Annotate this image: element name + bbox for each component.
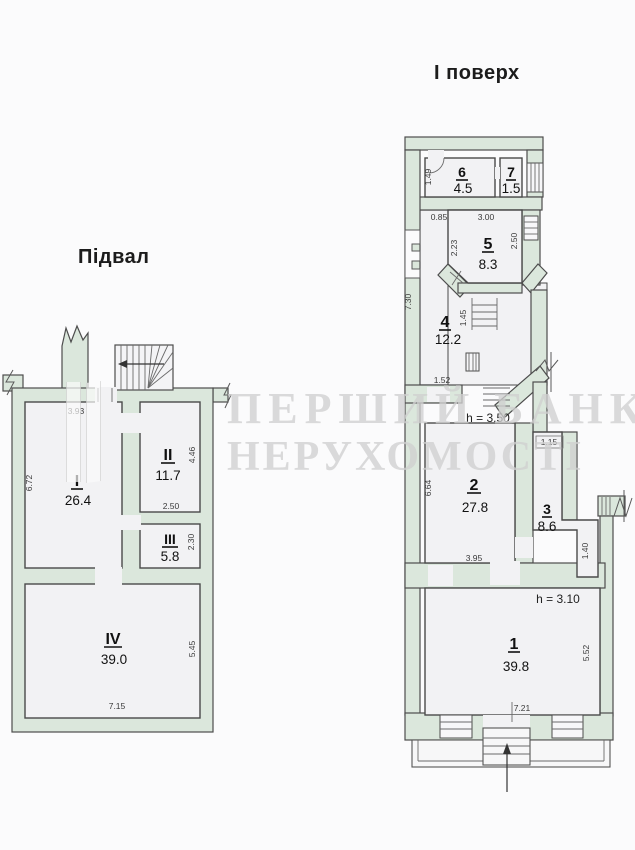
room-area: 39.0 bbox=[101, 652, 127, 667]
dimension-label: 4.46 bbox=[187, 446, 197, 463]
watermark-logo bbox=[66, 382, 116, 482]
room-number: 4 bbox=[441, 314, 450, 331]
watermark-line2: НЕРУХОМОСТІ bbox=[227, 433, 585, 481]
dimension-label: 5.52 bbox=[581, 644, 591, 661]
dimension-label: 1.45 bbox=[458, 309, 468, 326]
dimension-label: 5.45 bbox=[187, 640, 197, 657]
height-label: h = 3.10 bbox=[536, 592, 580, 606]
room-area: 4.5 bbox=[454, 181, 473, 196]
dimension-label: 3.95 bbox=[466, 553, 483, 563]
room-area: 8.6 bbox=[538, 519, 557, 534]
room-area: 12.2 bbox=[435, 332, 461, 347]
room-area: 39.8 bbox=[503, 659, 529, 674]
room-area: 8.3 bbox=[479, 257, 498, 272]
dimension-label: 7.30 bbox=[403, 293, 413, 310]
floorplan-scan-page: Підвал І поверх bbox=[0, 0, 635, 850]
dimension-label: 2.30 bbox=[186, 533, 196, 550]
room-area: 11.7 bbox=[155, 468, 180, 483]
dimension-label: 7.15 bbox=[109, 701, 126, 711]
room-area: 26.4 bbox=[65, 493, 92, 508]
dimension-label: 1.49 bbox=[423, 168, 433, 185]
dimension-label: 7.21 bbox=[514, 703, 531, 713]
room-area: 27.8 bbox=[462, 500, 488, 515]
room-area: 1.5 bbox=[502, 181, 521, 196]
dimension-label: 3.00 bbox=[478, 212, 495, 222]
dimension-label: 6.72 bbox=[24, 474, 34, 491]
basement-title: Підвал bbox=[78, 246, 150, 269]
room-number: 6 bbox=[458, 164, 466, 180]
room-number: 3 bbox=[543, 501, 551, 517]
watermark-logo-bar bbox=[86, 381, 101, 483]
dimension-label: 6.64 bbox=[423, 479, 433, 496]
dimension-label: 0.85 bbox=[431, 212, 448, 222]
room-number: II bbox=[164, 447, 173, 464]
watermark-logo-bar bbox=[66, 382, 81, 482]
room-number: 5 bbox=[484, 236, 493, 253]
room-number: 1 bbox=[510, 636, 519, 653]
room-number: 7 bbox=[507, 164, 515, 180]
room-number: IV bbox=[105, 631, 120, 648]
dimension-label: 2.50 bbox=[509, 232, 519, 249]
basement-plan-drawing: 3.93 6.72 I 26.4 II 11.7 4.46 2.50 III 5… bbox=[0, 320, 240, 740]
first-floor-title: І поверх bbox=[434, 62, 520, 85]
dimension-label: 2.50 bbox=[163, 501, 180, 511]
dimension-label: 1.40 bbox=[580, 542, 590, 559]
watermark-line1: ПЕРШИЙ БАНК bbox=[227, 383, 635, 434]
room-number: III bbox=[164, 531, 176, 547]
room-area: 5.8 bbox=[161, 549, 180, 564]
dimension-label: 2.23 bbox=[449, 239, 459, 256]
basement-stairs bbox=[115, 345, 173, 390]
